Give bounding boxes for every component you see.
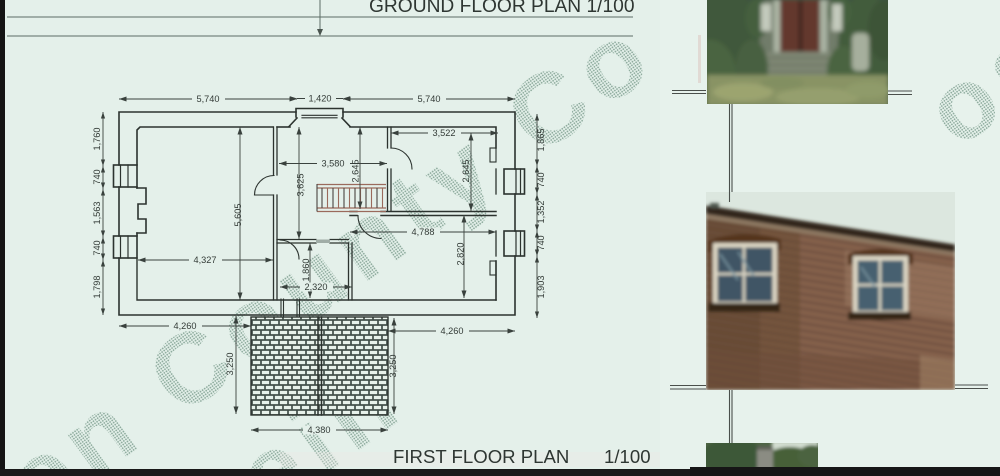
- svg-text:4,380: 4,380: [308, 425, 331, 435]
- svg-text:1,798: 1,798: [92, 276, 102, 299]
- svg-text:4,260: 4,260: [441, 326, 464, 336]
- svg-text:5,740: 5,740: [418, 94, 441, 104]
- svg-text:2,320: 2,320: [305, 282, 328, 292]
- svg-text:1,860: 1,860: [301, 259, 311, 282]
- svg-text:1/100: 1/100: [604, 446, 651, 467]
- svg-text:1,760: 1,760: [92, 128, 102, 151]
- svg-text:3,522: 3,522: [433, 128, 456, 138]
- svg-text:4,327: 4,327: [194, 255, 217, 265]
- svg-text:3,250: 3,250: [225, 353, 235, 376]
- svg-text:2,645: 2,645: [351, 160, 361, 183]
- svg-text:2,645: 2,645: [461, 160, 471, 183]
- svg-text:740: 740: [536, 172, 546, 187]
- svg-text:1,903: 1,903: [536, 276, 546, 299]
- svg-text:3,625: 3,625: [296, 174, 306, 197]
- svg-text:5,605: 5,605: [233, 204, 243, 227]
- svg-text:5,740: 5,740: [197, 94, 220, 104]
- svg-text:740: 740: [92, 240, 102, 255]
- svg-text:4,260: 4,260: [174, 321, 197, 331]
- svg-text:1,352: 1,352: [536, 201, 546, 224]
- svg-text:740: 740: [92, 169, 102, 184]
- svg-text:1,563: 1,563: [92, 202, 102, 225]
- svg-text:2,820: 2,820: [456, 243, 466, 266]
- svg-text:3,250: 3,250: [388, 355, 398, 378]
- svg-text:1,420: 1,420: [309, 94, 332, 104]
- svg-text:GROUND FLOOR PLAN 1/100: GROUND FLOOR PLAN 1/100: [369, 0, 635, 17]
- svg-text:1,865: 1,865: [536, 129, 546, 152]
- svg-text:4,788: 4,788: [412, 227, 435, 237]
- svg-text:3,580: 3,580: [322, 159, 345, 169]
- svg-text:FIRST FLOOR PLAN: FIRST FLOOR PLAN: [393, 446, 569, 467]
- svg-text:740: 740: [536, 235, 546, 250]
